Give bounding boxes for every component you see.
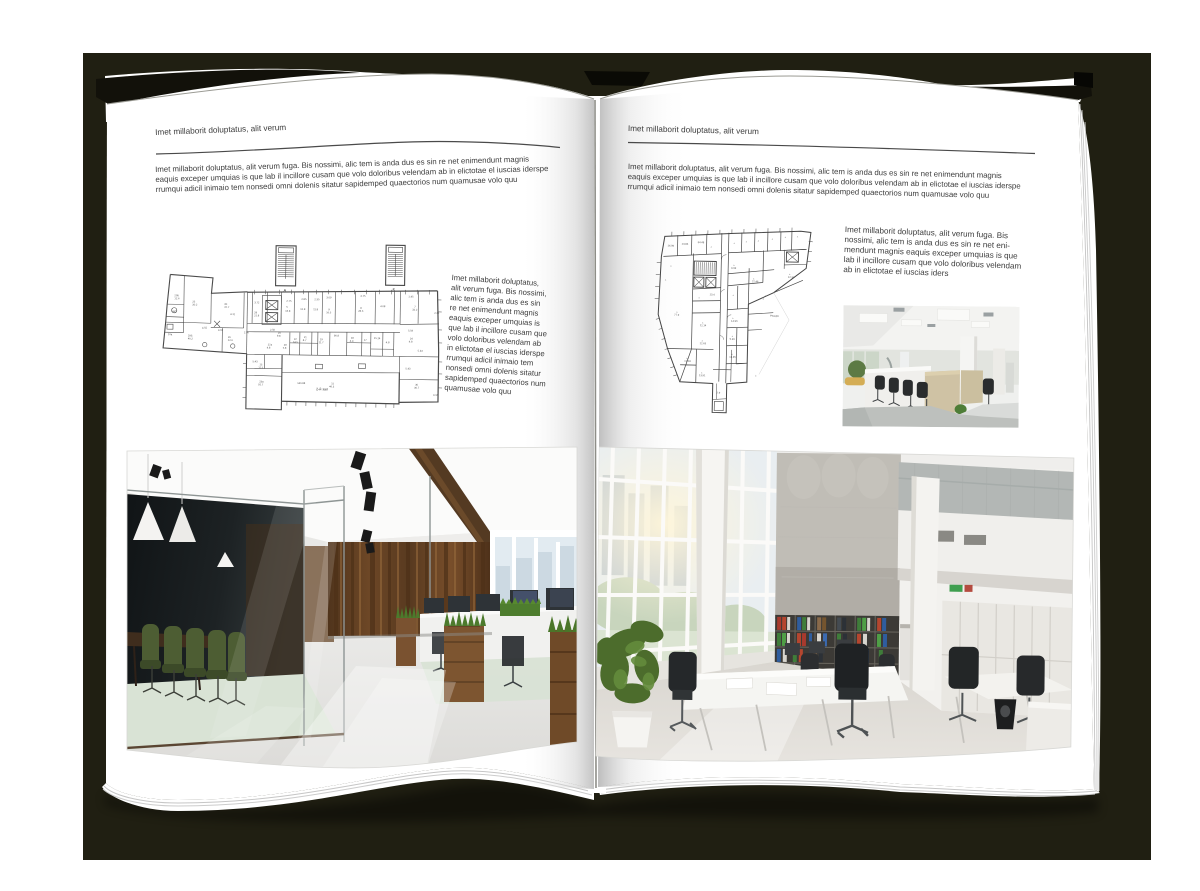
svg-text:140.88: 140.88 [297,381,306,385]
svg-text:12.6: 12.6 [174,296,180,300]
svg-text:2.56: 2.56 [270,328,276,332]
svg-text:3.75: 3.75 [360,294,366,298]
svg-text:▵: ▵ [746,240,748,243]
svg-text:13.91: 13.91 [699,373,706,377]
svg-text:4.4: 4.4 [350,339,354,343]
svg-text:4.8: 4.8 [267,346,271,350]
svg-text:3.18: 3.18 [433,393,439,397]
svg-text:2.75: 2.75 [286,299,292,303]
svg-text:2.9: 2.9 [717,391,721,395]
svg-text:17: 17 [364,338,367,342]
svg-text:12.63: 12.63 [700,341,707,345]
svg-text:11.7: 11.7 [319,340,324,344]
svg-text:30.7: 30.7 [414,386,420,390]
svg-text:▵: ▵ [797,235,799,238]
svg-text:3.72: 3.72 [254,300,260,304]
svg-text:2.36: 2.36 [434,311,440,315]
svg-text:28.6: 28.6 [358,309,364,313]
svg-text:4.55: 4.55 [202,326,208,330]
svg-text:5.43: 5.43 [405,366,411,370]
svg-text:5.43: 5.43 [252,359,258,363]
svg-text:14.85: 14.85 [729,355,736,359]
svg-text:34.48: 34.48 [698,240,705,244]
svg-text:91.7: 91.7 [258,382,264,386]
svg-text:▵: ▵ [665,278,667,281]
svg-text:10a: 10a [168,332,173,336]
svg-text:▵: ▵ [699,296,701,299]
svg-text:WC: WC [172,309,177,313]
svg-text:32.2: 32.2 [412,308,418,312]
svg-text:Резерв: Резерв [770,314,779,318]
svg-text:11.14: 11.14 [700,323,707,327]
svg-text:4.03: 4.03 [218,328,224,332]
svg-text:12.8: 12.8 [300,307,306,311]
svg-text:▵: ▵ [785,236,787,239]
svg-text:5: 5 [286,305,288,309]
svg-text:8.7: 8.7 [303,338,307,342]
svg-text:90.8: 90.8 [334,333,340,337]
svg-text:15.14: 15.14 [374,336,381,340]
svg-text:16.5: 16.5 [326,310,332,314]
svg-text:14.5: 14.5 [293,340,299,344]
svg-text:4.8: 4.8 [386,340,390,344]
svg-text:30.2: 30.2 [192,302,198,306]
svg-text:37.7: 37.7 [224,305,230,309]
svg-text:9.8: 9.8 [277,334,281,338]
svg-text:21.8: 21.8 [254,313,260,317]
svg-text:▵: ▵ [711,245,713,248]
svg-text:3.09: 3.09 [326,295,332,299]
svg-text:▵: ▵ [758,239,760,242]
svg-text:40.2: 40.2 [188,336,194,340]
svg-text:2.85: 2.85 [301,297,307,301]
svg-text:⌂: ⌂ [755,374,757,377]
svg-text:4.11: 4.11 [230,312,235,316]
svg-text:12.95: 12.95 [788,275,795,279]
svg-text:13.86: 13.86 [682,242,689,246]
svg-text:▵: ▵ [733,294,735,297]
svg-text:5.54: 5.54 [408,329,414,333]
svg-text:13.4: 13.4 [710,292,716,296]
svg-text:9.49: 9.49 [730,337,736,341]
svg-text:12.1: 12.1 [258,365,264,369]
svg-text:9.99: 9.99 [731,266,737,270]
svg-text:2.56: 2.56 [244,330,250,334]
svg-text:4.08: 4.08 [380,304,386,308]
svg-text:14.96: 14.96 [731,319,738,323]
svg-text:11.8: 11.8 [313,307,318,311]
svg-text:12.6: 12.6 [228,338,234,342]
svg-text:22.46: 22.46 [752,279,759,283]
svg-text:46.3: 46.3 [329,384,335,388]
svg-text:2.35: 2.35 [314,297,320,301]
svg-text:5.8: 5.8 [283,346,287,350]
svg-text:77.9: 77.9 [674,313,680,317]
svg-text:5.43: 5.43 [418,349,424,353]
svg-text:14.96: 14.96 [668,243,675,247]
svg-text:1.45: 1.45 [408,295,414,299]
svg-text:▵: ▵ [670,265,672,268]
svg-text:13.8: 13.8 [285,309,291,313]
svg-text:▵: ▵ [772,238,774,241]
svg-text:4.8: 4.8 [409,340,413,344]
svg-text:2-й зал: 2-й зал [316,387,328,391]
svg-text:▵: ▵ [734,242,736,245]
svg-text:17.18: 17.18 [684,359,691,363]
